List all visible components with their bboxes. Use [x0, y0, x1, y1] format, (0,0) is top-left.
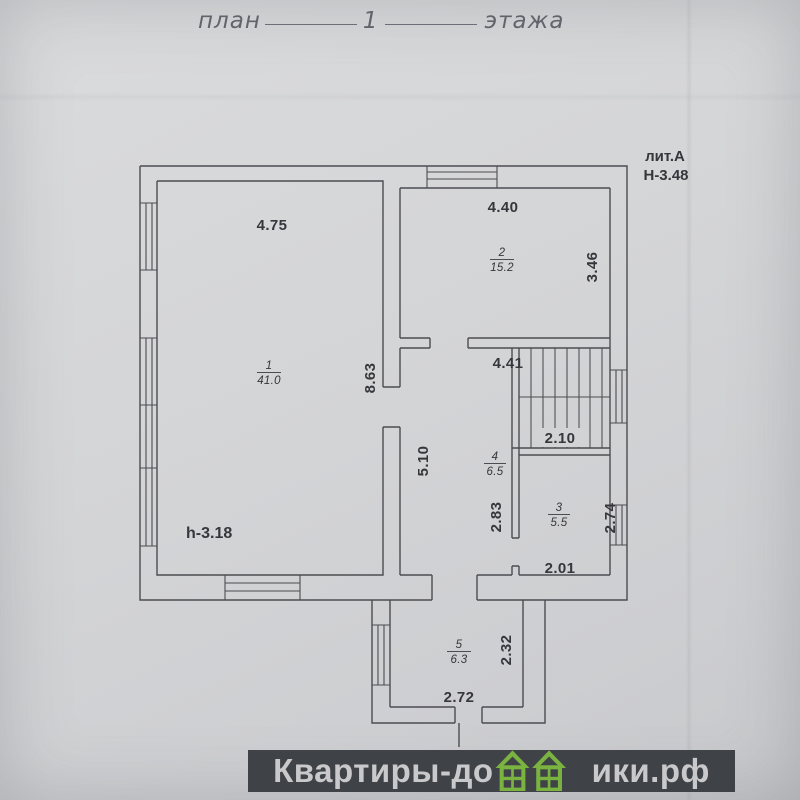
room-number: 1: [266, 360, 273, 372]
room-area: 6.3: [451, 654, 468, 666]
dim-room3-depth-left: 2.83: [488, 502, 505, 533]
room-area: 6.5: [487, 466, 504, 478]
room-area: 41.0: [257, 375, 281, 387]
dim-porch-width: 2.72: [444, 689, 475, 706]
dim-room1-depth: 8.63: [362, 363, 379, 394]
room-area: 15.2: [490, 262, 514, 274]
room-label-2: 2 15.2: [490, 247, 514, 274]
photographed-floor-plan-sheet: план 1 этажа 4.75 4.40 3.46 8.63 4.41 5.…: [0, 0, 800, 800]
dim-room2-width: 4.40: [488, 199, 519, 216]
dim-room2-depth: 3.46: [584, 252, 601, 283]
dim-porch-depth: 2.32: [498, 635, 515, 666]
houses-logo-icon: [495, 749, 591, 791]
dim-room1-width: 4.75: [257, 217, 288, 234]
building-height-note: Н-3.48: [643, 167, 688, 184]
dim-room3-width: 2.01: [545, 560, 576, 577]
room-label-4: 4 6.5: [484, 451, 506, 478]
watermark-text-right: ики.рф: [592, 752, 710, 790]
floor-plan-drawing: 4.75 4.40 3.46 8.63 4.41 5.10 2.10 2.83 …: [0, 0, 800, 800]
room-number: 3: [556, 502, 563, 514]
dim-hall-width: 4.41: [493, 355, 524, 372]
room-number: 5: [456, 639, 463, 651]
dim-hall-depth: 5.10: [415, 446, 432, 477]
room-area: 5.5: [551, 517, 568, 529]
watermark-text-left: Квартиры-до: [273, 752, 493, 790]
room-number: 4: [492, 451, 499, 463]
ceiling-height-note: h-3.18: [186, 525, 232, 542]
liter-note: лит.А: [645, 148, 685, 165]
watermark-banner: Квартиры-до ики.рф: [248, 750, 735, 792]
dim-room3-depth-right: 2.74: [602, 502, 619, 533]
dim-stair-width: 2.10: [545, 430, 576, 447]
room-label-3: 3 5.5: [548, 502, 570, 529]
room-number: 2: [498, 247, 506, 259]
room-label-5: 5 6.3: [447, 639, 471, 666]
porch-interior-walls: [390, 600, 523, 747]
room-label-1: 1 41.0: [257, 360, 281, 387]
